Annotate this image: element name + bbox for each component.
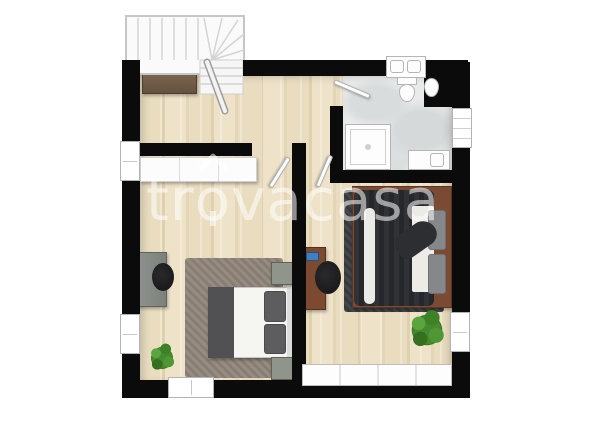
left-bedroom-chair [152,263,174,291]
window-left-lower [120,314,140,354]
plant-left-bedroom [147,342,177,374]
nightstand [271,262,294,285]
wall-left-middle [122,179,140,316]
window-left-upper [120,141,140,181]
bathroom-wall-shelf [452,108,472,148]
wall-left-bedroom-top [140,143,252,156]
window-bottom-large [302,364,452,386]
wall-bottom-right [296,386,468,398]
laptop-on-desk [306,252,319,261]
right-bed-blanket-stripe [364,208,375,304]
wall-left-top [122,60,140,143]
plant-right-bedroom [406,308,448,352]
left-bed-blanket [208,287,234,358]
sink [407,60,421,73]
wall-top-main [243,60,388,76]
window-bottom-left [168,377,214,398]
shower-drain [365,144,371,150]
sink [390,60,404,73]
right-bed-pillow [428,254,446,294]
right-bedroom-office-chair [315,261,341,294]
storage-unit-lid [430,153,444,167]
wall-bathroom-bottom [330,170,452,183]
wall-bedrooms-divider [292,143,306,386]
window-right [450,312,470,352]
floor-plan-page: trovacasa [0,0,600,422]
wardrobe [140,157,257,182]
left-bed-pillow [264,324,286,354]
left-bed-pillow [264,291,286,322]
